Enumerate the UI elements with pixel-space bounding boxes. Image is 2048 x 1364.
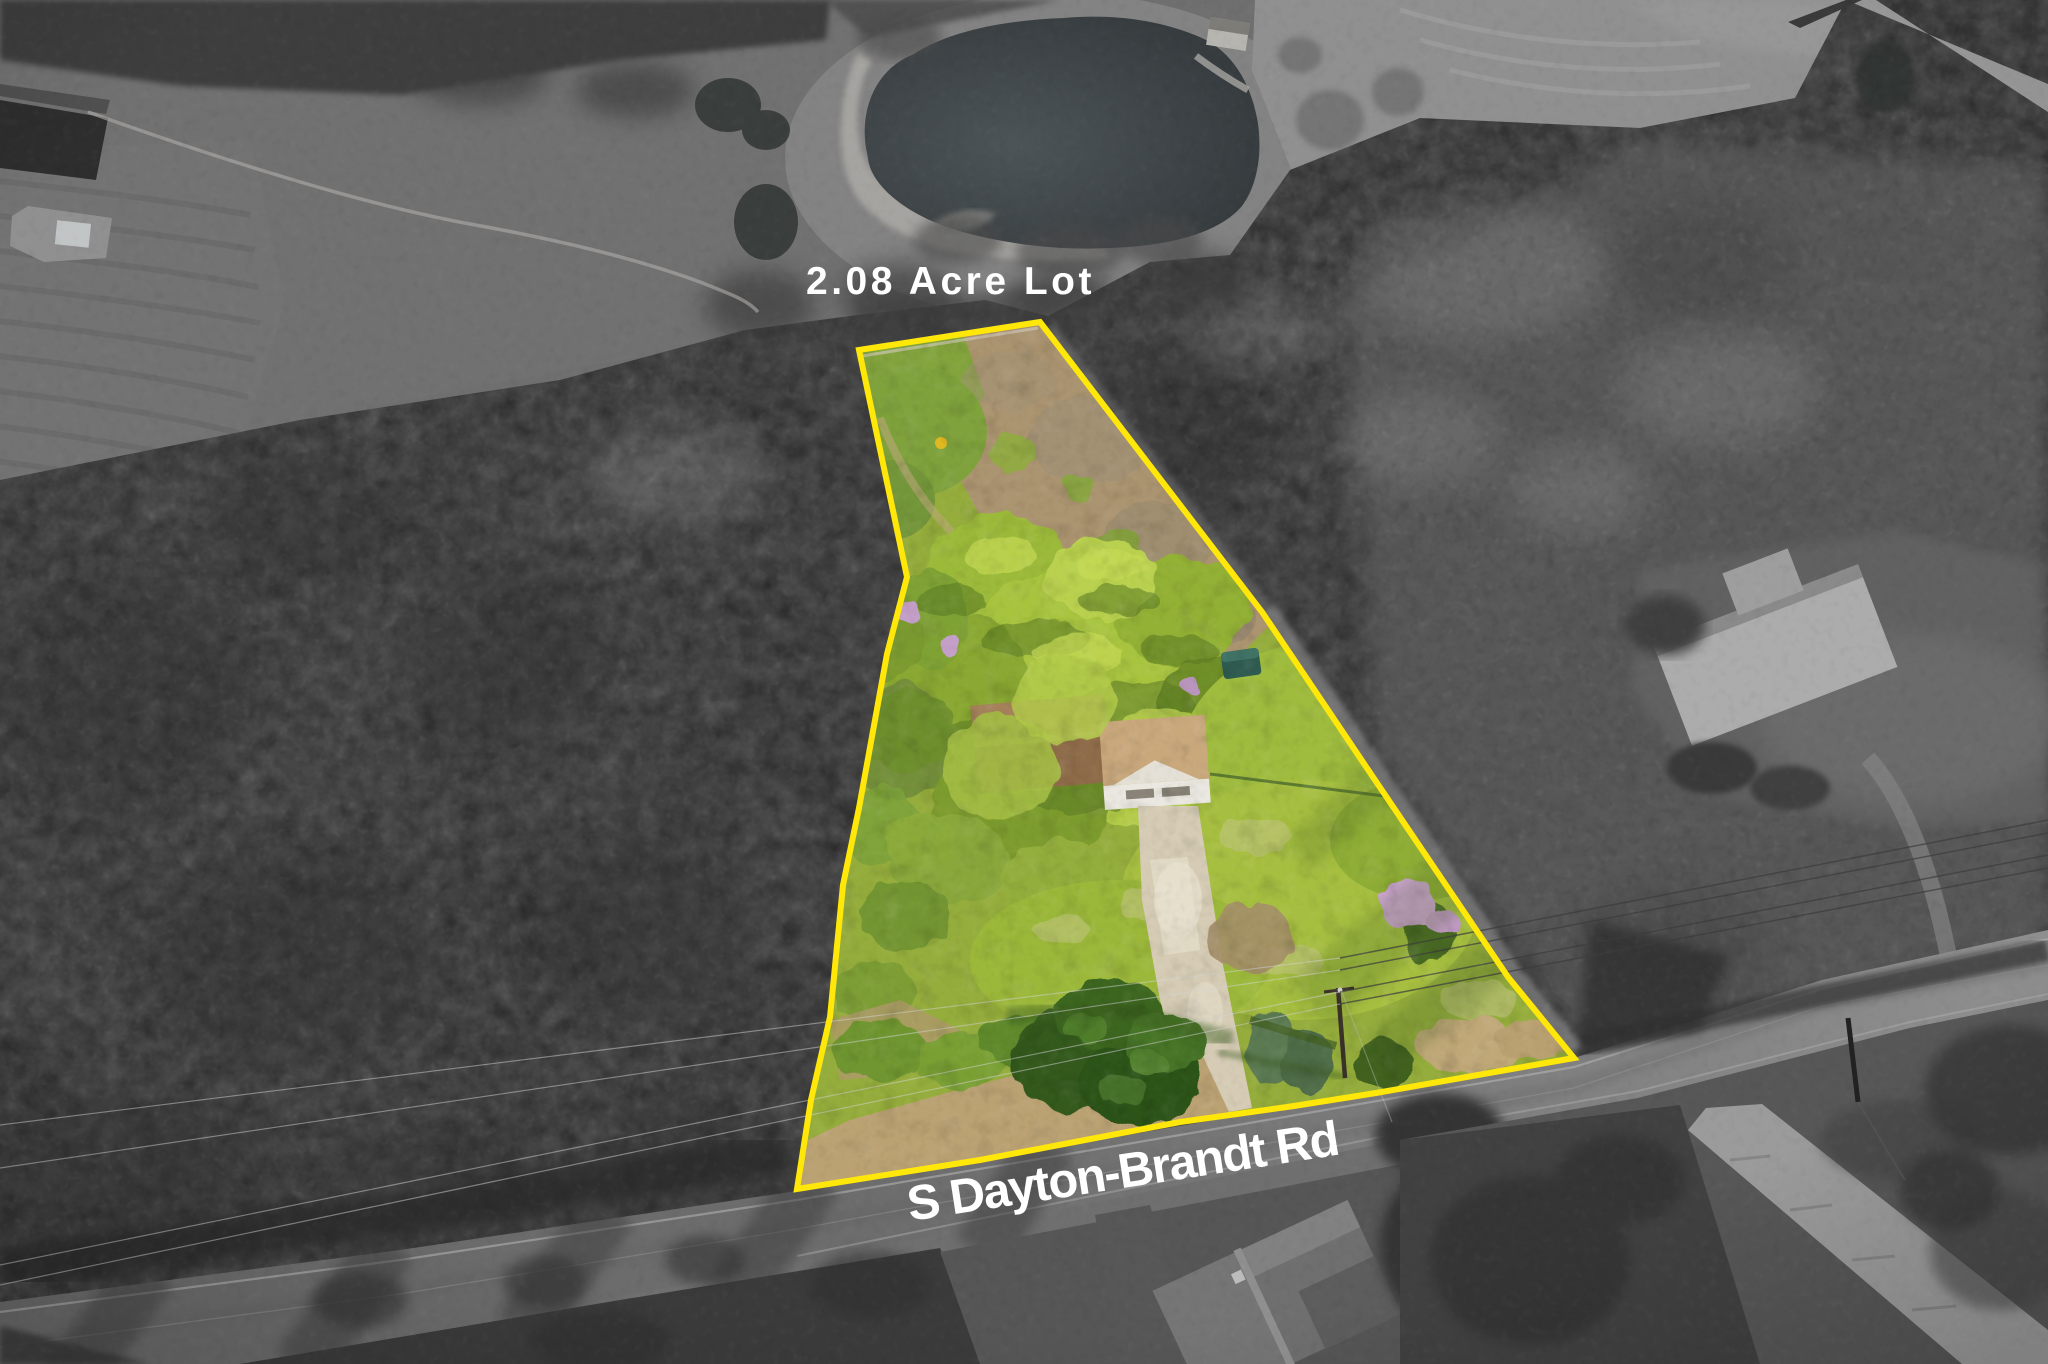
svg-text:2.08 Acre Lot: 2.08 Acre Lot [806, 260, 1095, 303]
